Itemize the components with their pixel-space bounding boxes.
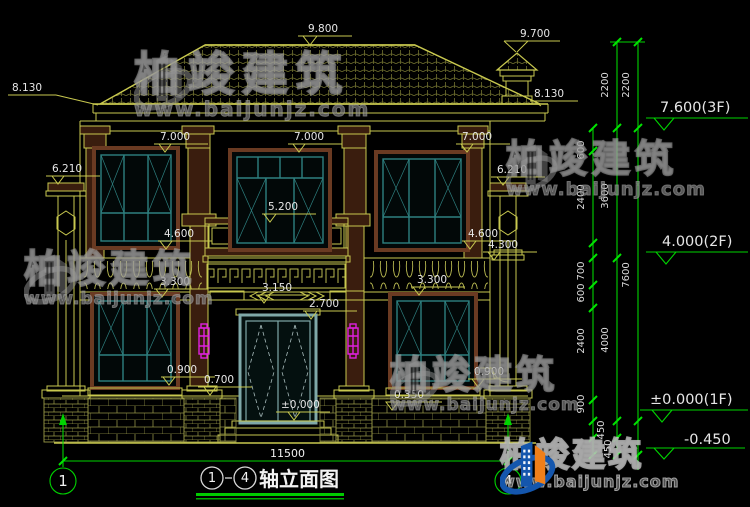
svg-text:600: 600 (576, 283, 587, 302)
svg-text:0.900: 0.900 (474, 366, 504, 378)
dim-ridge: 9.800 (298, 23, 352, 45)
svg-text:0.350: 0.350 (394, 389, 424, 401)
svg-text:3600: 3600 (600, 183, 611, 208)
chain-ticks (589, 38, 642, 459)
svg-text:900: 900 (576, 394, 587, 413)
level-2f: 4.000(2F) (662, 234, 732, 250)
svg-text:700: 700 (576, 261, 587, 280)
chimney (497, 53, 537, 104)
svg-text:2400: 2400 (576, 328, 587, 353)
svg-text:6.210: 6.210 (497, 164, 527, 176)
drawing-title: 1 4 轴立面图 (196, 467, 344, 500)
dim-label-9700: 9.700 (520, 28, 550, 40)
svg-text:3.300: 3.300 (160, 276, 190, 288)
svg-text:7.000: 7.000 (462, 131, 492, 143)
svg-text:±0.000: ±0.000 (281, 399, 320, 411)
level-3f: 7.600(3F) (660, 100, 730, 116)
svg-text:2.700: 2.700 (309, 298, 339, 310)
dim-4300: 4.300 (483, 239, 537, 260)
svg-text:4.600: 4.600 (164, 228, 194, 240)
window-2f-right (376, 152, 468, 250)
overall-width-dim: 11500 (270, 447, 305, 460)
svg-text:600: 600 (576, 140, 587, 159)
cad-elevation-svg: 9.800 9.700 8.130 8.130 7.000 7.000 7.00… (0, 0, 750, 507)
svg-text:4.300: 4.300 (488, 239, 518, 251)
svg-text:3.300: 3.300 (417, 274, 447, 286)
dim-label-8130-left: 8.130 (12, 82, 42, 94)
title-axis-start: 1 (208, 471, 216, 486)
title-axis-end: 4 (241, 471, 249, 486)
window-1f-left (88, 294, 182, 395)
svg-text:2400: 2400 (576, 184, 587, 209)
svg-text:7.000: 7.000 (160, 131, 190, 143)
right-dimension-chains: 600 2400 700 600 2400 900 450 450 2200 3… (576, 38, 748, 470)
right-post (488, 183, 528, 386)
svg-text:450: 450 (596, 420, 607, 439)
svg-text:0.900: 0.900 (167, 364, 197, 376)
svg-text:2200: 2200 (600, 72, 611, 97)
chain-labels: 600 2400 700 600 2400 900 450 450 2200 3… (576, 72, 632, 458)
svg-text:4000: 4000 (600, 327, 611, 352)
dim-label-9800: 9.800 (308, 23, 338, 35)
svg-text:0.700: 0.700 (204, 374, 234, 386)
dim-6210-right: 6.210 (491, 164, 545, 185)
hip-roof (100, 45, 540, 104)
dim-chimney: 9.700 (504, 28, 560, 52)
svg-text:7600: 7600 (621, 262, 632, 287)
level-1f: ±0.000(1F) (650, 392, 733, 408)
elevation-drawing-canvas: 9.800 9.700 8.130 8.130 7.000 7.000 7.00… (0, 0, 750, 507)
svg-text:6.210: 6.210 (52, 163, 82, 175)
svg-text:7.000: 7.000 (294, 131, 324, 143)
dim-eave-left: 8.130 (8, 82, 98, 105)
dim-label-8130-right: 8.130 (534, 88, 564, 100)
svg-text:450: 450 (603, 439, 614, 458)
dim-eave-right: 8.130 (530, 88, 578, 106)
window-2f-middle (230, 150, 330, 250)
level-markers: 7.600(3F) 4.000(2F) ±0.000(1F) -0.450 (640, 100, 748, 459)
svg-text:3.150: 3.150 (262, 282, 292, 294)
axis-bubble-1: 1 (58, 472, 68, 490)
axis-bubble-4: 4 (503, 472, 513, 490)
eave-cornice (93, 104, 548, 121)
svg-text:2200: 2200 (621, 72, 632, 97)
title-text: 轴立面图 (259, 467, 339, 491)
dim-7000-c: 7.000 (456, 131, 510, 152)
level-minus-0450: -0.450 (684, 432, 731, 448)
svg-text:5.200: 5.200 (268, 201, 298, 213)
dim-0900-right: 0.900 (468, 366, 522, 387)
